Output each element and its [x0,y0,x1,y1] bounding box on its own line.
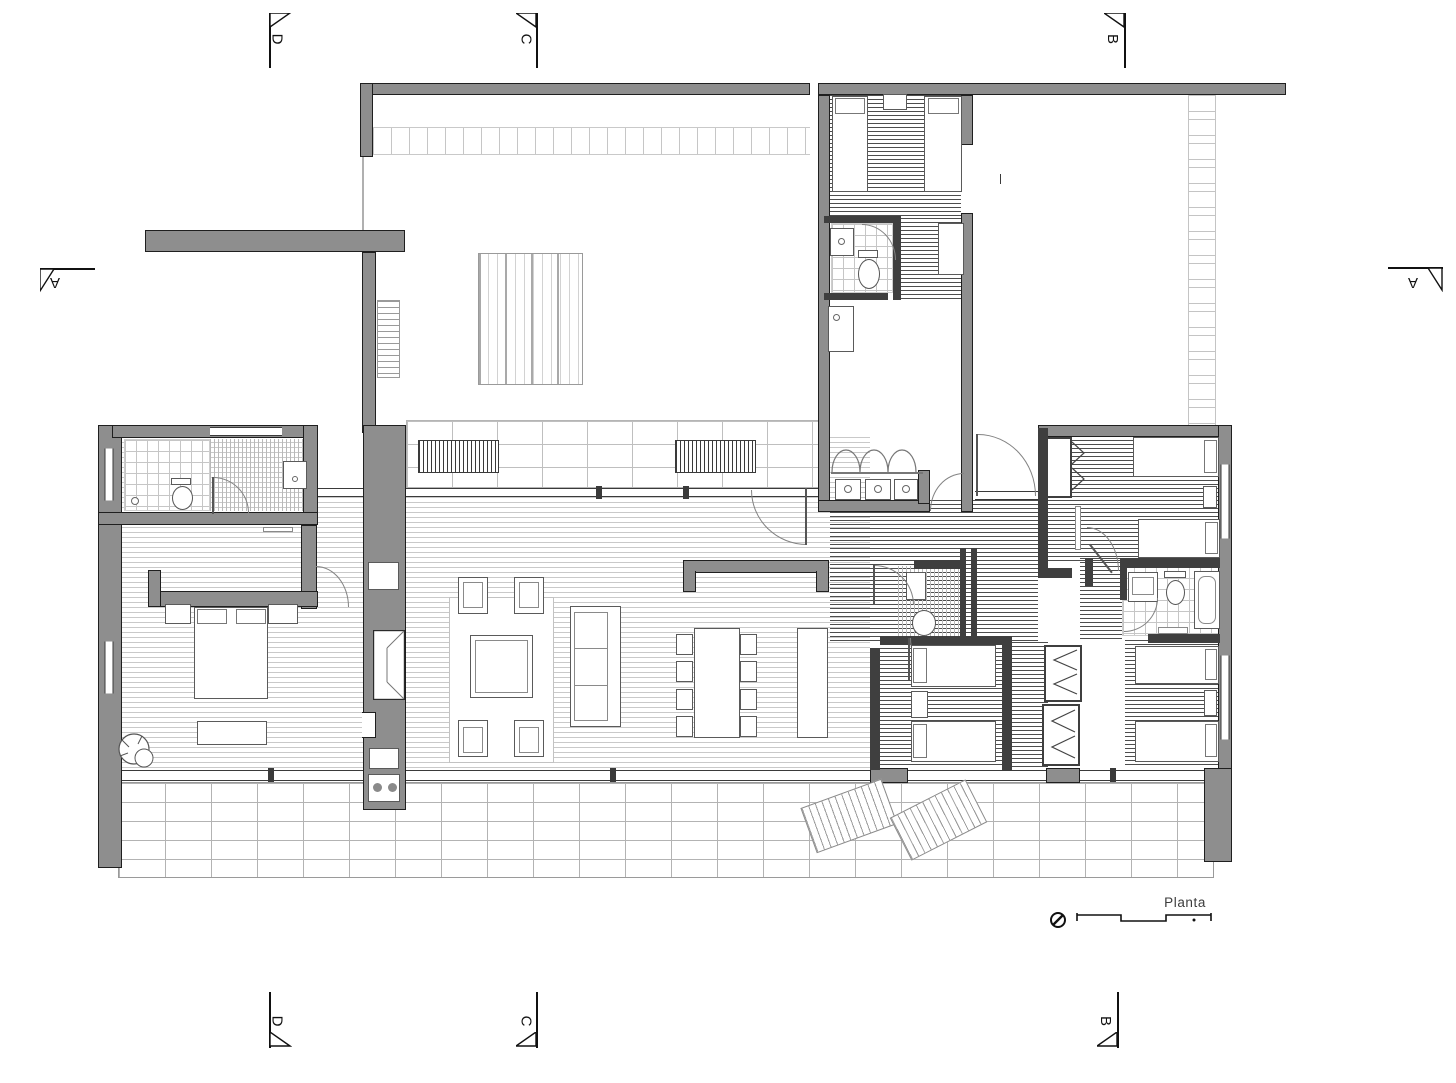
bedroom-s1-door-leaf [908,638,910,680]
west-window-2 [105,642,114,694]
shelf [263,527,293,532]
closet-hangers-icon [1044,706,1077,763]
closet-partition-v [148,570,161,607]
master-sink-drain [292,476,298,482]
section-label-a-right: A [1408,274,1418,290]
sideboard [797,628,828,738]
section-label-b-bottom: B [1097,1016,1113,1026]
living-courtyard-door-leaf [805,488,807,545]
bedroom-s1-wall-top-a [880,636,908,645]
section-flag-icon [1097,1032,1119,1048]
master-bath-skylight [210,427,282,436]
stairs [377,300,400,378]
stepping-stones-path [1188,95,1216,431]
court-wall-top-return [360,83,373,157]
bedroom-bench [197,721,267,745]
armchair [514,577,544,614]
armchair [514,720,544,757]
dining-chair [740,634,757,655]
pool-wall-south [818,500,930,512]
shower-curtain-arcs [828,443,928,475]
pool-bed-2-pillow [928,98,959,114]
bed-ne-2-pillow [1205,522,1218,554]
burner-dot [388,783,397,792]
wardrobe-ne [1046,437,1072,498]
bed-ne-1-pillow [1204,440,1217,473]
dining-chair [676,716,693,737]
east-window-2 [1221,656,1230,740]
vanity-sink-2-basin [874,485,882,493]
pool-closet [938,223,964,275]
section-label-d-bottom: D [268,1016,284,1027]
floor-grille-1 [418,440,499,473]
vanity-counter-line [831,472,923,474]
pool-bath-wall-top [824,216,900,223]
dining-chair [676,661,693,682]
nightstand-s2 [1204,690,1217,716]
closet-hangers-icon [1046,647,1079,699]
bath-mat [1158,627,1188,634]
double-partition-b [971,548,977,645]
north-indicator-icon [1048,910,1068,930]
floor-plan-canvas: D C B D C B A A Planta [0,0,1456,1083]
master-bed-pillow [197,609,227,624]
nightstand-right [268,604,298,624]
pool-toilet-icon [858,259,880,289]
section-label-a-left: A [50,274,60,290]
floor-grille-2 [675,440,756,473]
east-toilet-icon [1166,580,1185,605]
plan-title: Planta [1140,895,1206,910]
closet-south-2 [1042,704,1080,766]
pool-wall-south-return [918,470,930,504]
bed-s1-b-pillow [913,724,927,758]
section-label-c-top: C [517,34,533,45]
closet-south-1 [1044,645,1082,702]
dining-table [694,628,740,738]
small-bath-wall-top [914,560,964,569]
east-toilet-tank [1164,571,1186,578]
bedroom-s1-wall-right [1002,636,1012,770]
bbq-counter [369,748,399,769]
washer-dial [833,314,840,321]
court-wall-top [360,83,810,95]
pool-bed-1-pillow [835,98,865,114]
vanity-sink-1-basin [844,485,852,493]
glazing-post-2 [1046,768,1080,783]
terrace-floor [118,782,1214,878]
service-notch [362,712,376,738]
partition-ne-horizontal [1038,568,1072,578]
pergola-band [373,127,810,155]
east-window-1 [1221,465,1230,539]
pool-wall-east-a [961,95,973,145]
west-window-1 [105,449,114,501]
dining-chair [740,689,757,710]
mullion-tick [1110,768,1116,782]
bed-s2-a-pillow [1205,649,1217,680]
master-toilet-tank [171,478,191,485]
mullion-tick [268,768,274,782]
armchair [458,720,488,757]
east-bath-wall-top [1120,558,1220,568]
mullion-tick [610,768,616,782]
dining-chair [740,661,757,682]
section-flag-icon [270,13,292,29]
wardrobe-ne-hangers-icon [1071,440,1087,498]
vanity-sink-3-basin [902,485,910,493]
kitchen-counter-top [683,560,829,573]
section-label-d-top: D [268,34,284,45]
kitchen-counter-leg [683,571,696,592]
southeast-wall [1204,768,1232,862]
nightstand-left [165,604,191,624]
double-partition-a [960,548,966,645]
coffee-table [470,635,533,698]
small-bath-door-leaf [873,565,875,605]
nightstand-s1 [911,691,928,718]
mullion-tick [596,486,602,499]
section-flag-icon [1428,268,1444,292]
hall-entry-door-leaf [976,434,978,496]
shower-head-icon [131,497,139,505]
court-wall-west [145,230,405,252]
nightstand-ne [1203,486,1217,508]
louver-deck [478,253,583,385]
dining-chair [740,716,757,737]
hall-entry-door-arc [978,434,1036,496]
bed-s2-b-pillow [1205,724,1217,757]
bathtub [1194,571,1220,629]
dining-chair [676,689,693,710]
graphic-scale-bar [1076,910,1214,926]
east-bath-wall-left [1120,568,1127,600]
burner-dot [373,783,382,792]
east-bath-wall-bottom [1148,634,1220,643]
section-flag-icon [270,1032,292,1048]
master-bath-wall-south [98,512,318,525]
small-bath-toilet-icon [912,610,936,636]
section-flag-icon [516,13,538,29]
mullion-tick [683,486,689,499]
glass-line [362,157,364,231]
section-flag-icon [1104,13,1126,29]
lightwell-patch [318,437,363,489]
pool-nightstand [883,94,907,110]
master-toilet-icon [172,486,193,510]
pool-bath-wall-bottom [824,293,888,300]
east-wing-wall-top [1038,425,1232,437]
bedroom-s1-wall-left [870,648,880,770]
master-bath-door-leaf [212,477,214,514]
master-bed-pillow [236,609,266,624]
kitchen-counter-leg [816,571,829,592]
armchair [458,577,488,614]
section-label-c-bottom: C [517,1016,533,1027]
section-flag-icon [516,1032,538,1048]
bed-s1-a-pillow [913,648,927,683]
glazing-north-1 [318,488,364,497]
fireplace-icon [373,630,405,700]
section-label-b-top: B [1104,34,1120,44]
dining-chair [676,634,693,655]
service-niche [368,562,399,590]
pool-exit-door-arc [930,473,964,511]
master-sink [283,461,307,489]
closet-door-bar [1075,506,1081,550]
sofa [570,606,621,727]
washer-box [828,306,854,352]
pool-sink-drain [838,238,845,245]
court-wall-west-return [362,252,376,433]
plant-icon [112,728,160,774]
glazing-south [122,770,1204,781]
